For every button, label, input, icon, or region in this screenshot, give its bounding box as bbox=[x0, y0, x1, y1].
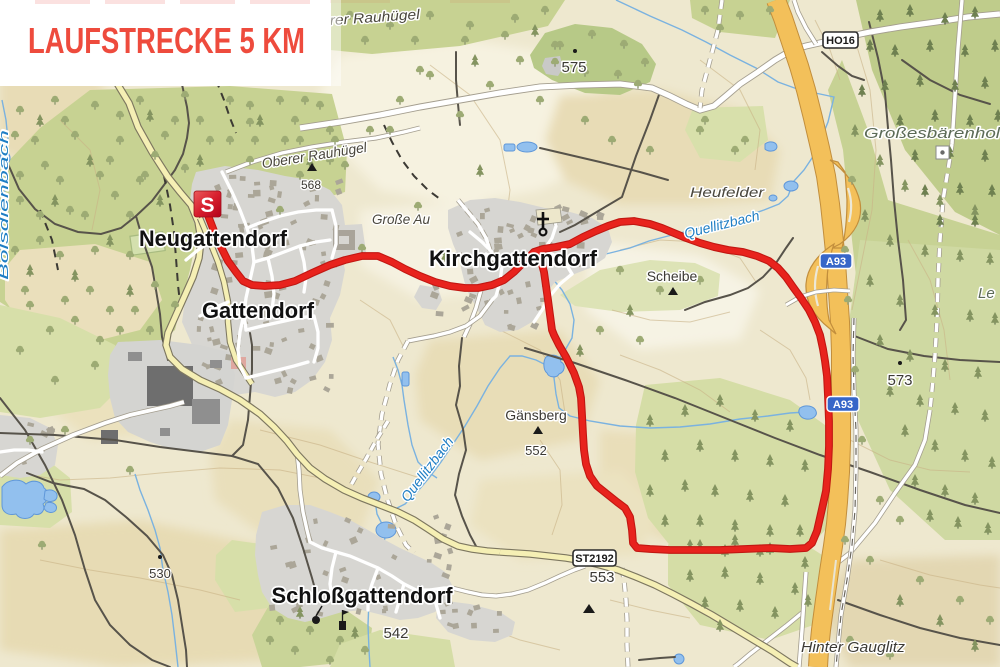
svg-text:Hinter Gauglitz: Hinter Gauglitz bbox=[801, 639, 906, 656]
svg-text:553: 553 bbox=[589, 569, 614, 586]
svg-text:Heufelder: Heufelder bbox=[690, 184, 766, 200]
svg-text:Gattendorf: Gattendorf bbox=[202, 298, 315, 323]
svg-text:LAUFSTRECKE 5 KM: LAUFSTRECKE 5 KM bbox=[28, 20, 305, 61]
svg-text:Neugattendorf: Neugattendorf bbox=[139, 226, 288, 251]
svg-text:573: 573 bbox=[887, 372, 912, 389]
svg-text:Le: Le bbox=[978, 285, 995, 302]
svg-text:S: S bbox=[200, 194, 214, 217]
svg-text:552: 552 bbox=[525, 443, 547, 458]
svg-text:575: 575 bbox=[561, 59, 586, 76]
svg-text:A93: A93 bbox=[826, 256, 846, 268]
svg-text:Kirchgattendorf: Kirchgattendorf bbox=[429, 246, 598, 271]
svg-text:542: 542 bbox=[383, 625, 408, 642]
svg-text:ST2192: ST2192 bbox=[575, 553, 614, 565]
svg-text:Bolsdienbach: Bolsdienbach bbox=[0, 130, 11, 280]
svg-text:Große Au: Große Au bbox=[372, 211, 430, 227]
svg-text:568: 568 bbox=[301, 178, 321, 192]
svg-text:Scheibe: Scheibe bbox=[647, 268, 698, 284]
svg-text:530: 530 bbox=[149, 566, 171, 581]
svg-text:Gänsberg: Gänsberg bbox=[505, 407, 566, 423]
svg-text:Großesbärenhol: Großesbärenhol bbox=[864, 125, 1000, 142]
svg-text:Schloßgattendorf: Schloßgattendorf bbox=[272, 583, 454, 608]
svg-text:HO16: HO16 bbox=[826, 35, 855, 47]
svg-text:A93: A93 bbox=[833, 399, 853, 411]
